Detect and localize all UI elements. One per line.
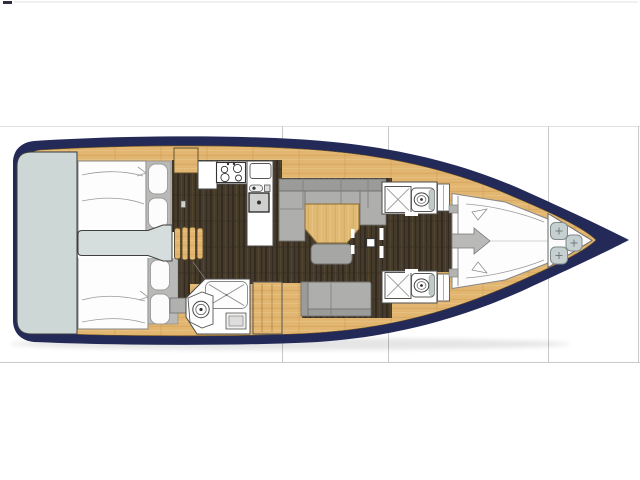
toilet-icon xyxy=(188,292,213,328)
aft-head xyxy=(186,279,282,334)
deck-hatch-icon xyxy=(566,235,582,251)
saloon-table xyxy=(305,204,359,243)
bench-sofa xyxy=(301,282,371,316)
faucet-icon xyxy=(250,185,271,192)
swim-platform-transom xyxy=(17,152,77,334)
pillow-icon xyxy=(149,164,168,194)
forward-head-port xyxy=(382,182,450,216)
sink-icon xyxy=(249,193,269,212)
yacht-floorplan-diagram xyxy=(0,0,640,480)
deck-hatch-icon xyxy=(551,247,568,264)
stove-icon xyxy=(217,163,246,183)
head-sink-icon xyxy=(226,313,246,329)
saloon-stool xyxy=(311,244,352,264)
door-gap xyxy=(405,212,418,216)
door-gap xyxy=(380,228,384,240)
door-gap xyxy=(405,269,418,273)
pillow-icon xyxy=(151,294,170,324)
galley-cabinet-left xyxy=(198,161,217,189)
mast-post xyxy=(367,239,376,248)
galley-cabinet xyxy=(174,148,198,173)
aft-cabin-port xyxy=(78,161,171,233)
door-handle xyxy=(181,201,186,208)
pillow-icon xyxy=(151,260,170,290)
yacht-layout-screenshot xyxy=(0,0,640,480)
page-corner-artifact xyxy=(3,1,12,4)
step-block xyxy=(170,298,188,313)
toilet-icon xyxy=(412,274,435,298)
engine-box xyxy=(78,225,172,261)
deck-hatch-icon xyxy=(551,223,568,240)
aft-cabin-starboard xyxy=(78,257,178,329)
bedside-shelf xyxy=(449,269,458,277)
fridge-lid xyxy=(250,164,271,179)
bedside-shelf xyxy=(449,205,458,213)
toilet-icon xyxy=(412,188,435,212)
wardrobe xyxy=(253,282,282,334)
door-gap xyxy=(351,245,355,254)
saloon-wood-floor xyxy=(282,283,302,318)
pillow-icon xyxy=(149,198,168,228)
shower-tray-icon xyxy=(385,273,411,299)
shower-tray-icon xyxy=(385,187,411,213)
door-gap xyxy=(380,246,384,258)
door-gap xyxy=(351,229,355,238)
